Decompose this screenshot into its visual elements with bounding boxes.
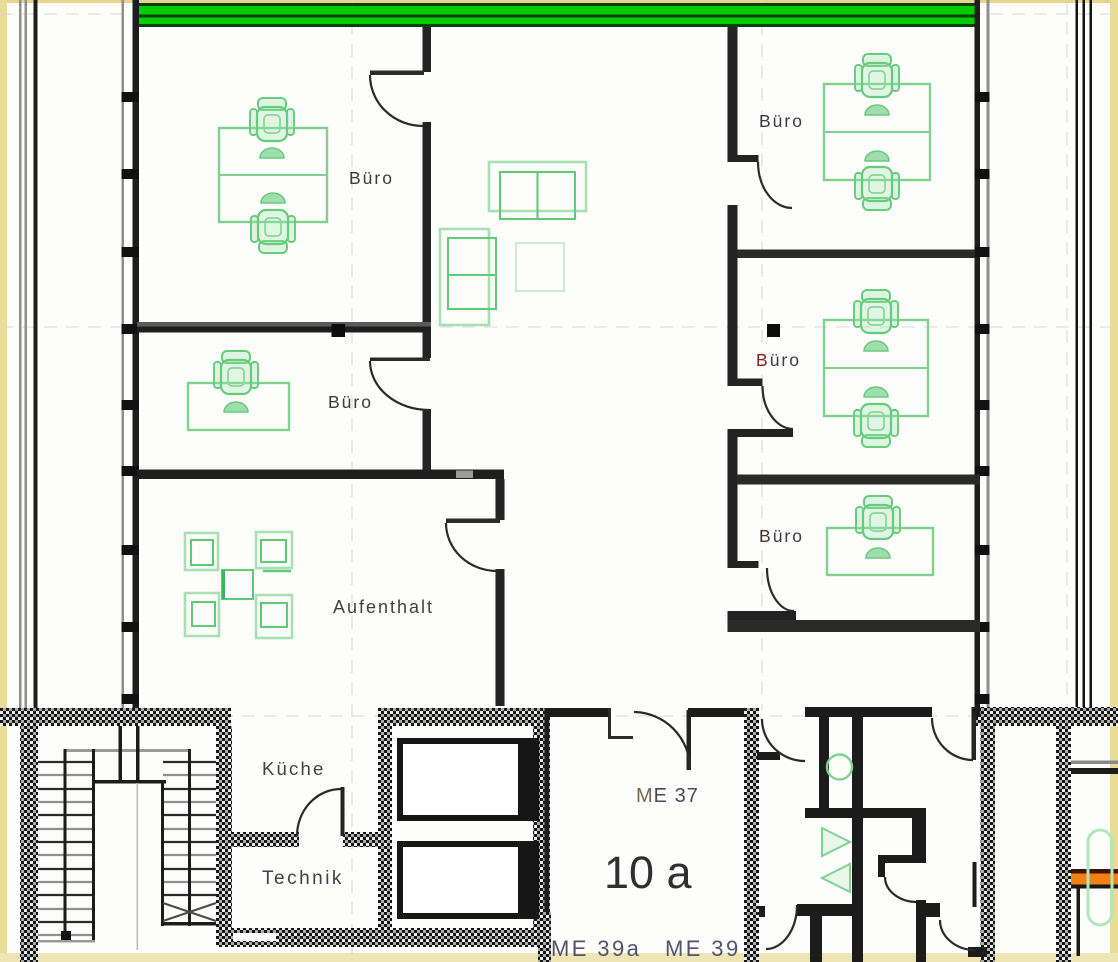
svg-text:Büro: Büro: [756, 350, 801, 370]
svg-text:ME 39a: ME 39a: [551, 936, 641, 961]
svg-text:Technik: Technik: [262, 868, 344, 889]
svg-text:Büro: Büro: [349, 168, 394, 188]
svg-text:Aufenthalt: Aufenthalt: [333, 597, 434, 617]
svg-text:10 a: 10 a: [604, 847, 693, 898]
svg-text:ME 39: ME 39: [665, 936, 741, 961]
svg-text:Küche: Küche: [262, 758, 325, 779]
svg-text:Büro: Büro: [759, 526, 804, 546]
svg-text:ME 37: ME 37: [636, 785, 699, 807]
svg-text:Büro: Büro: [759, 111, 804, 131]
svg-text:Büro: Büro: [328, 392, 373, 412]
